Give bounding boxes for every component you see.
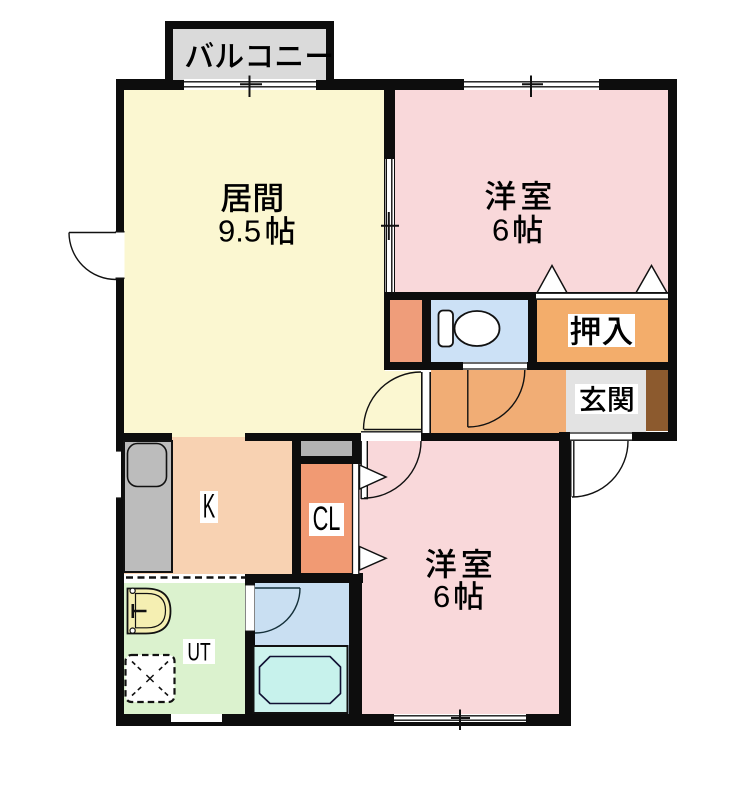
svg-text:CL: CL	[313, 500, 341, 538]
svg-text:6: 6	[433, 579, 450, 614]
svg-text:UT: UT	[187, 637, 210, 666]
svg-text:6: 6	[492, 213, 509, 248]
svg-text:K: K	[203, 487, 215, 525]
svg-text:9.5: 9.5	[218, 214, 261, 249]
